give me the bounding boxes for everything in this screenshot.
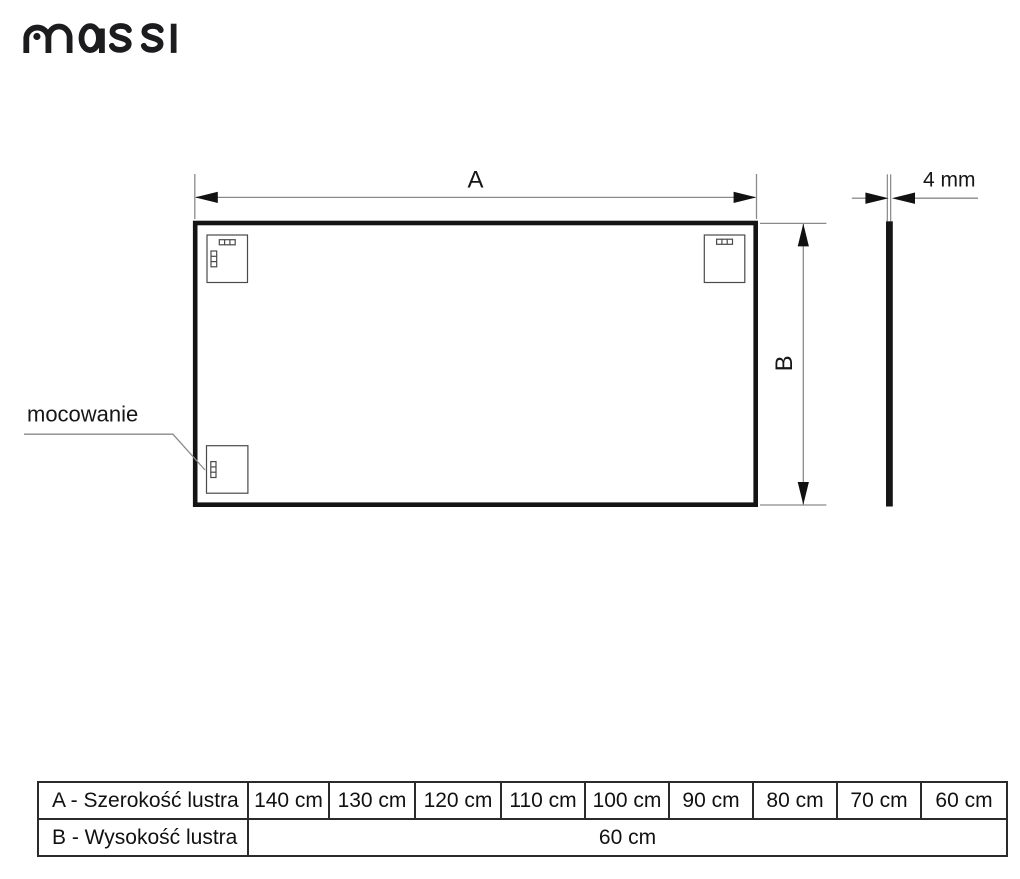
svg-text:A: A	[467, 167, 483, 194]
svg-text:B: B	[771, 355, 798, 371]
svg-text:mocowanie: mocowanie	[27, 402, 138, 427]
svg-text:4 mm: 4 mm	[923, 169, 976, 192]
